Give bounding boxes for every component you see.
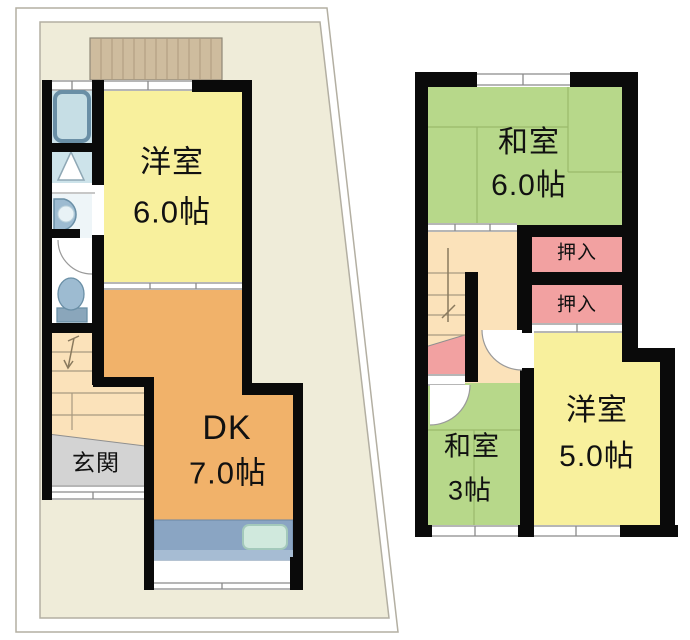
label-western5-name: 洋室 [566,396,628,426]
kitchen-sink-icon [243,525,287,549]
label-western6-name: 洋室 [140,147,204,178]
label-western5-size: 5.0帖 [559,442,635,472]
label-japanese6-name: 和室 [498,128,560,158]
label-entrance: 玄関 [72,452,120,475]
label-western6-size: 6.0帖 [133,197,211,228]
label-japanese3-size: 3帖 [448,478,492,505]
label-closet-lower: 押入 [557,296,597,315]
label-dk-size: 7.0帖 [189,458,267,489]
room-western-5a [528,328,638,527]
floorplan-drawing [0,0,690,640]
balcony-deck [90,38,222,80]
label-closet-upper: 押入 [557,244,597,263]
kitchen-counter [154,520,293,560]
toilet-icon [58,278,84,310]
room-western-6 [95,85,250,292]
label-japanese6-size: 6.0帖 [491,171,567,201]
label-japanese3-name: 和室 [444,434,500,461]
label-dk-name: DK [202,411,251,445]
floorplan-canvas: 洋室 6.0帖 DK 7.0帖 玄関 和室 6.0帖 押入 押入 和室 3帖 洋… [0,0,690,640]
bathtub-icon [55,92,89,141]
